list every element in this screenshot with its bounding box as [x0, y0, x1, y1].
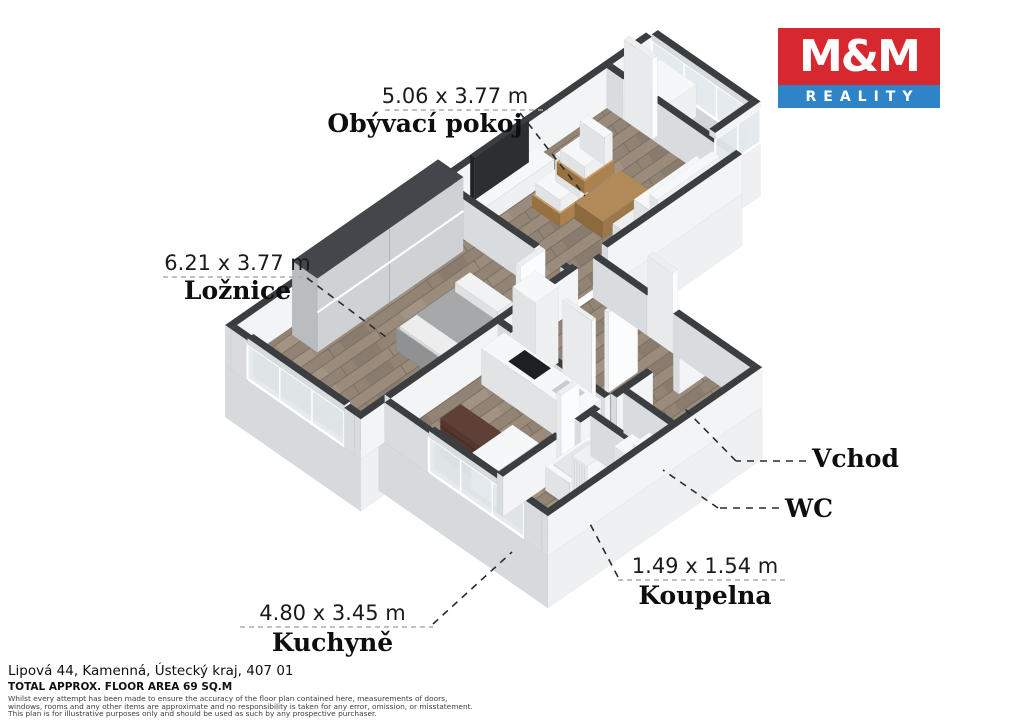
logo-reality-text: REALITY [778, 85, 940, 108]
footer-disclaimer: Whilst every attempt has been made to en… [8, 695, 473, 718]
mm-reality-logo: M&M REALITY [778, 28, 940, 108]
label-entrance-name: Vchod [812, 444, 902, 473]
label-kitchen-name: Kuchyně [235, 628, 430, 657]
label-living-name: Obývací pokoj [305, 109, 545, 138]
logo-mm-text: M&M [778, 28, 940, 85]
label-living-dimensions: 5.06 x 3.77 m [340, 84, 570, 108]
footer-disclaimer-line3: This plan is for illustrative purposes o… [8, 710, 473, 718]
label-bedroom-dimensions: 6.21 x 3.77 m [145, 251, 330, 275]
label-bathroom-name: Koupelna [605, 581, 805, 610]
label-wc-name: WC [785, 494, 845, 523]
label-kitchen-dimensions: 4.80 x 3.45 m [235, 601, 430, 625]
footer-address: Lipová 44, Kamenná, Ústecký kraj, 407 01 [8, 663, 294, 679]
label-bathroom-dimensions: 1.49 x 1.54 m [605, 554, 805, 578]
label-bedroom-name: Ložnice [145, 276, 330, 305]
footer-total-area: TOTAL APPROX. FLOOR AREA 69 SQ.M [8, 681, 232, 693]
floorplan-page: M&M REALITY 5.06 x 3.77 m Obývací pokoj … [0, 0, 1024, 724]
